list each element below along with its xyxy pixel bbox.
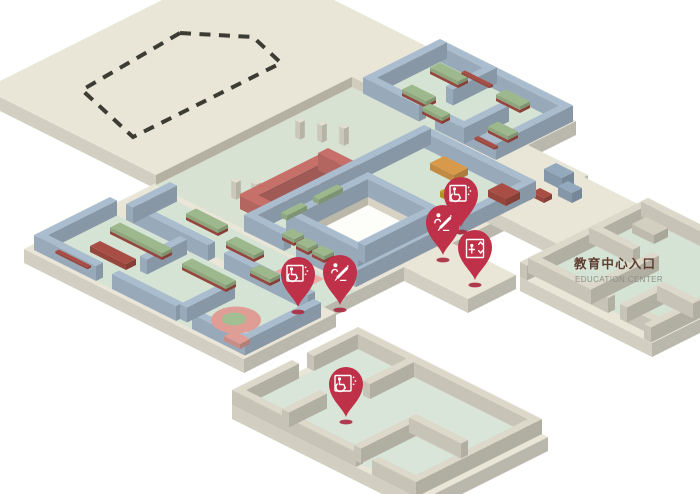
pin-shadow <box>469 283 482 288</box>
column-side <box>339 126 344 145</box>
column-side <box>231 180 236 199</box>
column-side <box>300 120 305 139</box>
column-side <box>344 126 349 145</box>
courtyard-wall-side <box>358 242 365 264</box>
column-side <box>295 120 300 139</box>
pin-shadow <box>334 308 347 313</box>
education-center-label-en: EDUCATION CENTER <box>575 275 663 284</box>
pin-shadow <box>292 310 305 315</box>
pin-shadow <box>437 258 450 263</box>
column-side <box>322 123 327 142</box>
museum-isometric-map: 教育中心入口 EDUCATION CENTER <box>0 0 700 494</box>
column-side <box>317 123 322 142</box>
pin-shadow <box>340 420 353 425</box>
education-center-label-cn: 教育中心入口 <box>573 256 656 271</box>
labels: 教育中心入口 EDUCATION CENTER <box>573 256 663 284</box>
round-exhibit-center <box>222 313 246 326</box>
